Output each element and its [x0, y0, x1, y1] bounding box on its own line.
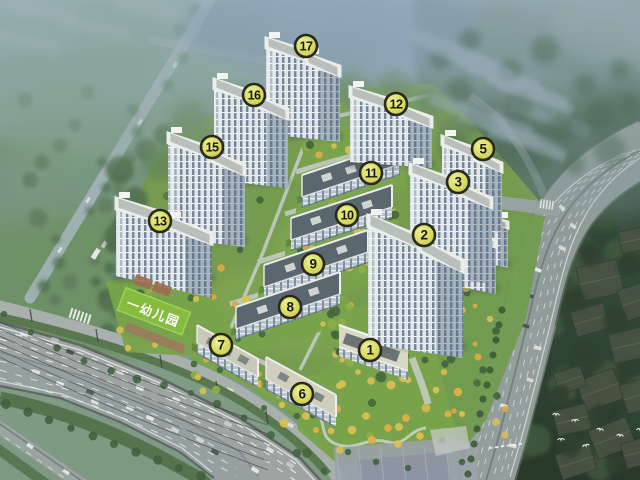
svg-text:15: 15: [206, 140, 219, 154]
svg-text:13: 13: [154, 214, 167, 228]
svg-text:12: 12: [390, 97, 403, 111]
svg-text:16: 16: [248, 88, 261, 102]
svg-text:8: 8: [287, 299, 295, 314]
svg-text:7: 7: [218, 337, 225, 352]
svg-text:11: 11: [365, 166, 378, 180]
svg-text:1: 1: [367, 342, 375, 357]
svg-text:5: 5: [480, 141, 488, 156]
svg-text:17: 17: [300, 39, 313, 53]
svg-text:3: 3: [455, 174, 463, 189]
svg-text:10: 10: [341, 208, 354, 222]
svg-text:6: 6: [299, 386, 307, 401]
svg-text:2: 2: [421, 227, 428, 242]
svg-text:9: 9: [310, 256, 317, 271]
